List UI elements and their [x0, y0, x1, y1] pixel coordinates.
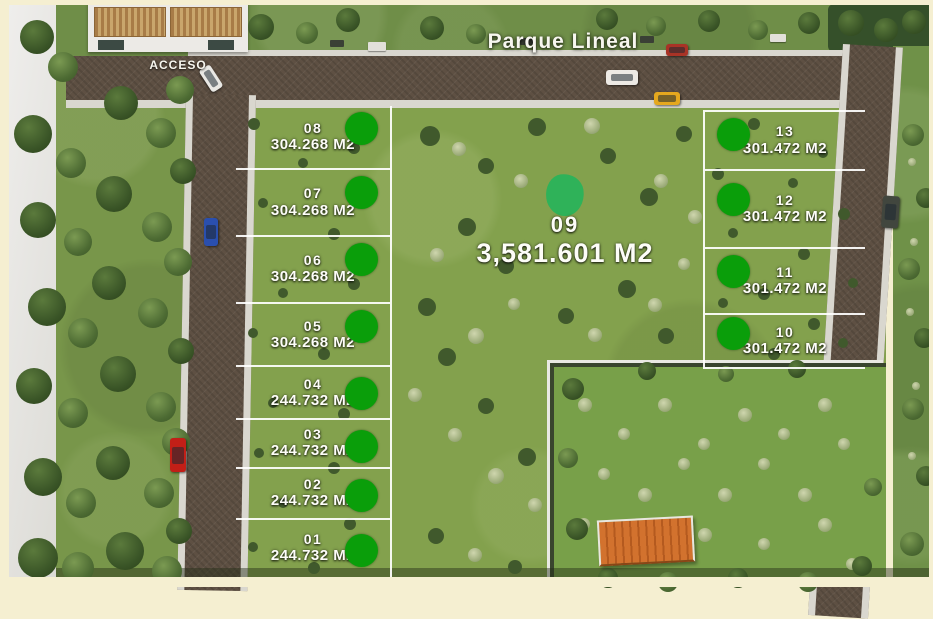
lot-07[interactable]: 07 304.268 M2 — [236, 168, 390, 234]
lot-number: 08 — [304, 120, 323, 136]
availability-marker[interactable] — [345, 243, 378, 276]
lot-number: 01 — [304, 531, 323, 547]
availability-marker[interactable] — [345, 479, 378, 512]
lot-12[interactable]: 12 301.472 M2 — [705, 169, 865, 247]
park-bench — [330, 40, 344, 47]
lot-area: 304.268 M2 — [271, 136, 355, 154]
lot-02[interactable]: 02 244.732 M2 — [236, 467, 390, 518]
lot-area: 304.268 M2 — [271, 334, 355, 352]
lot-area: 301.472 M2 — [743, 140, 827, 158]
lot-06[interactable]: 06 304.268 M2 — [236, 235, 390, 302]
lot-09[interactable]: 09 3,581.601 M2 — [448, 212, 682, 270]
lot-number: 11 — [776, 264, 794, 280]
bottom-edge-shadow — [56, 568, 933, 578]
white-van — [606, 70, 638, 85]
storage-building — [597, 516, 695, 567]
lot-area: 301.472 M2 — [743, 340, 827, 358]
lot-04[interactable]: 04 244.732 M2 — [236, 365, 390, 418]
lot-08[interactable]: 08 304.268 M2 — [236, 106, 390, 168]
entrance-gate — [98, 40, 124, 50]
lot-03[interactable]: 03 244.732 M2 — [236, 418, 390, 467]
lot-area: 244.732 M2 — [271, 392, 355, 410]
pergola-roof — [170, 7, 242, 37]
entrance-building — [88, 2, 248, 52]
lot-area: 304.268 M2 — [271, 202, 355, 220]
lot-number: 13 — [776, 123, 795, 139]
lot-area: 244.732 M2 — [271, 442, 355, 460]
lot-number: 03 — [304, 426, 323, 442]
availability-marker[interactable] — [345, 176, 378, 209]
lot-05[interactable]: 05 304.268 M2 — [236, 302, 390, 365]
lot-number: 05 — [304, 318, 323, 334]
availability-marker[interactable] — [717, 183, 750, 216]
left-lot-column: 08 304.268 M2 07 304.268 M2 06 304.268 M… — [236, 106, 392, 577]
lot-number: 10 — [776, 324, 795, 340]
access-label: ACCESO — [136, 58, 220, 72]
availability-marker[interactable] — [345, 310, 378, 343]
lot-area: 304.268 M2 — [271, 268, 355, 286]
park-kiosk — [368, 42, 386, 51]
availability-marker[interactable] — [345, 534, 378, 567]
lot-11[interactable]: 11 301.472 M2 — [705, 247, 865, 313]
perimeter-wall — [8, 4, 56, 577]
availability-marker[interactable] — [345, 112, 378, 145]
lot-10[interactable]: 10 301.472 M2 — [705, 313, 865, 367]
lot-number: 12 — [776, 192, 795, 208]
red-car — [170, 438, 186, 472]
site-plan-render: 08 304.268 M2 07 304.268 M2 06 304.268 M… — [0, 0, 933, 587]
lot-number: 04 — [304, 376, 323, 392]
availability-marker[interactable] — [345, 430, 378, 463]
park-title: Parque Lineal — [398, 30, 728, 54]
lot-number: 02 — [304, 476, 323, 492]
lot-01[interactable]: 01 244.732 M2 — [236, 518, 390, 577]
lot-area: 244.732 M2 — [271, 492, 355, 510]
availability-marker[interactable] — [717, 118, 750, 151]
lot-area: 301.472 M2 — [743, 208, 827, 226]
blue-car — [204, 218, 218, 246]
park-kiosk — [770, 34, 786, 42]
yellow-car — [654, 92, 680, 105]
availability-marker[interactable] — [345, 377, 378, 410]
right-green-strip — [893, 46, 933, 587]
gray-car — [881, 195, 900, 228]
lot-area: 3,581.601 M2 — [448, 237, 682, 269]
lot-area: 244.732 M2 — [271, 547, 355, 565]
availability-marker[interactable] — [717, 255, 750, 288]
lot-number: 06 — [304, 252, 323, 268]
entrance-gate — [208, 40, 234, 50]
availability-marker[interactable] — [717, 317, 750, 350]
pergola-roof — [94, 7, 166, 37]
lot-number: 07 — [304, 185, 323, 201]
lot-13[interactable]: 13 301.472 M2 — [705, 112, 865, 169]
right-lot-column: 13 301.472 M2 12 301.472 M2 11 301.472 M… — [703, 110, 865, 369]
lot-area: 301.472 M2 — [743, 280, 827, 298]
lot-number: 09 — [448, 212, 682, 237]
